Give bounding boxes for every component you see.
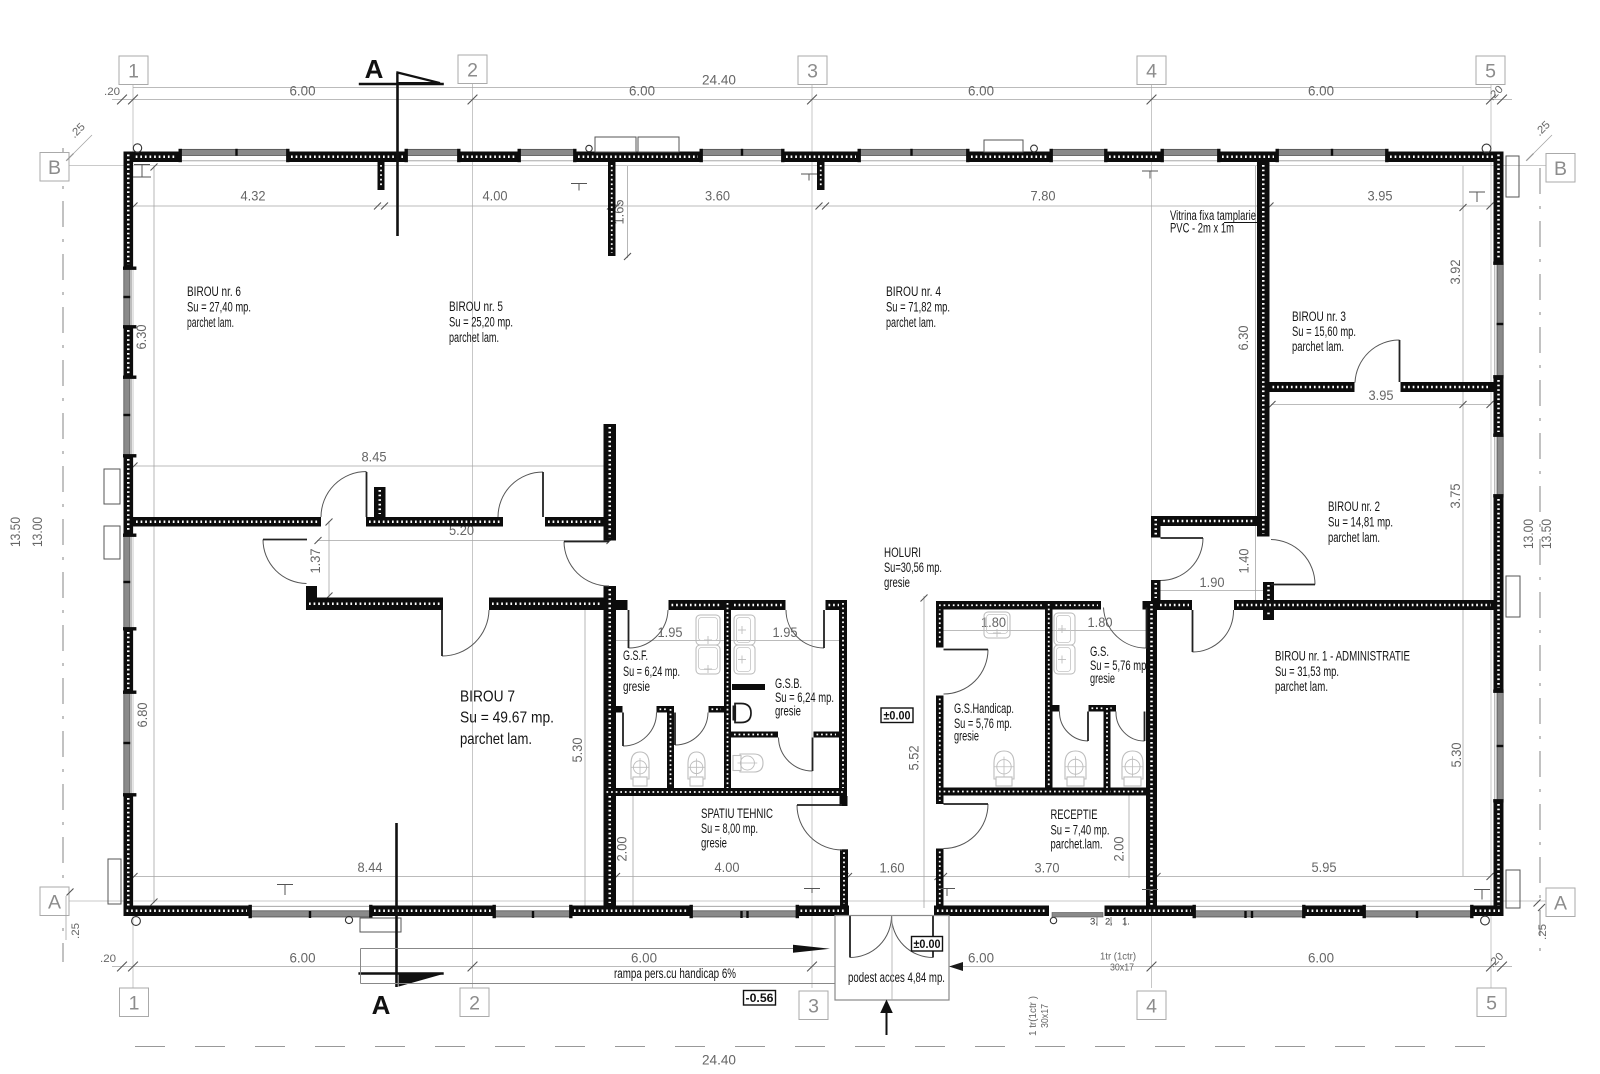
svg-text:3.92: 3.92 <box>1448 260 1463 285</box>
svg-text:7.80: 7.80 <box>1031 189 1056 204</box>
svg-text:3.70: 3.70 <box>1035 861 1060 876</box>
svg-text:4: 4 <box>1146 996 1157 1018</box>
svg-text:Su = 71,82 mp.: Su = 71,82 mp. <box>886 300 950 315</box>
svg-text:6.00: 6.00 <box>1308 84 1334 99</box>
svg-text:3: 3 <box>807 61 818 83</box>
svg-text:6.30: 6.30 <box>1236 326 1251 351</box>
svg-text:gresie: gresie <box>775 704 801 719</box>
svg-text:podest acces 4,84 mp.: podest acces 4,84 mp. <box>848 970 945 985</box>
svg-text:G.S.Handicap.: G.S.Handicap. <box>954 701 1014 716</box>
svg-text:Su = 14,81 mp.: Su = 14,81 mp. <box>1328 515 1393 530</box>
svg-text:RECEPTIE: RECEPTIE <box>1051 807 1098 822</box>
svg-text:6.00: 6.00 <box>968 84 994 99</box>
svg-text:BIROU 7: BIROU 7 <box>460 689 515 706</box>
svg-text:Su = 27,40 mp.: Su = 27,40 mp. <box>187 300 251 315</box>
svg-text:B: B <box>1554 158 1567 180</box>
svg-text:Su = 49.67 mp.: Su = 49.67 mp. <box>460 710 554 727</box>
svg-text:4.32: 4.32 <box>241 189 266 204</box>
svg-text:HOLURI: HOLURI <box>884 545 921 560</box>
svg-text:±0.00: ±0.00 <box>884 711 911 723</box>
svg-text:parchet lam.: parchet lam. <box>460 731 532 748</box>
svg-text:5.52: 5.52 <box>907 746 922 771</box>
svg-text:Su=30,56 mp.: Su=30,56 mp. <box>884 560 942 575</box>
svg-text:1.80: 1.80 <box>981 615 1006 630</box>
svg-text:1 tr(1ctr ): 1 tr(1ctr ) <box>1028 996 1039 1036</box>
svg-text:Su = 6,24 mp.: Su = 6,24 mp. <box>623 664 680 679</box>
svg-text:3.95: 3.95 <box>1368 189 1393 204</box>
svg-text:30x17: 30x17 <box>1110 963 1134 974</box>
svg-text:1: 1 <box>129 993 140 1015</box>
svg-text:parchet lam.: parchet lam. <box>1275 679 1328 694</box>
svg-text:BIROU nr. 5: BIROU nr. 5 <box>449 299 503 314</box>
svg-text:BIROU nr. 3: BIROU nr. 3 <box>1292 309 1346 324</box>
svg-text:5.95: 5.95 <box>1312 860 1337 875</box>
svg-text:1.37: 1.37 <box>308 549 323 574</box>
svg-text:G.S.B.: G.S.B. <box>775 676 802 691</box>
svg-text:3.: 3. <box>1090 917 1098 928</box>
svg-text:A: A <box>1554 893 1567 915</box>
svg-text:A: A <box>48 892 61 914</box>
svg-text:1.80: 1.80 <box>1088 615 1113 630</box>
svg-text:4.00: 4.00 <box>715 860 740 875</box>
svg-text:-0.56: -0.56 <box>746 993 774 1005</box>
svg-text:13.50: 13.50 <box>1539 519 1554 549</box>
svg-text:6.00: 6.00 <box>1308 951 1334 966</box>
svg-text:8.44: 8.44 <box>358 860 383 875</box>
svg-text:1.: 1. <box>1122 917 1130 928</box>
svg-text:2: 2 <box>467 60 478 82</box>
svg-text:gresie: gresie <box>954 729 979 744</box>
svg-text:.20: .20 <box>100 953 116 965</box>
svg-text:PVC - 2m x 1m: PVC - 2m x 1m <box>1170 221 1234 236</box>
svg-text:24.40: 24.40 <box>702 73 736 88</box>
svg-text:13.00: 13.00 <box>30 517 45 547</box>
svg-text:2.: 2. <box>1105 917 1113 928</box>
svg-text:gresie: gresie <box>1090 671 1115 686</box>
svg-text:5.30: 5.30 <box>570 738 585 763</box>
svg-text:3.60: 3.60 <box>705 189 730 204</box>
svg-text:±0.00: ±0.00 <box>914 939 941 951</box>
svg-text:2.00: 2.00 <box>615 837 630 862</box>
svg-text:1.90: 1.90 <box>1200 575 1225 590</box>
svg-text:6.80: 6.80 <box>135 703 150 728</box>
svg-text:Su = 25,20 mp.: Su = 25,20 mp. <box>449 315 513 330</box>
svg-text:parchet.lam.: parchet.lam. <box>1051 837 1103 852</box>
svg-text:SPATIU TEHNIC: SPATIU TEHNIC <box>701 806 773 821</box>
svg-text:6.00: 6.00 <box>290 951 316 966</box>
svg-text:Su = 31,53 mp.: Su = 31,53 mp. <box>1275 664 1339 679</box>
svg-text:1.60: 1.60 <box>880 861 905 876</box>
svg-text:2.00: 2.00 <box>1112 837 1127 862</box>
svg-text:1tr (1ctr): 1tr (1ctr) <box>1100 952 1136 963</box>
svg-text:gresie: gresie <box>701 836 727 851</box>
svg-text:.20: .20 <box>104 86 120 98</box>
svg-text:Su = 15,60 mp.: Su = 15,60 mp. <box>1292 324 1356 339</box>
svg-text:parchet lam.: parchet lam. <box>1328 530 1380 545</box>
svg-text:1: 1 <box>128 61 139 83</box>
svg-text:6.00: 6.00 <box>631 951 657 966</box>
svg-text:1.95: 1.95 <box>658 625 683 640</box>
svg-text:13.50: 13.50 <box>8 517 23 547</box>
svg-text:BIROU nr. 4: BIROU nr. 4 <box>886 284 941 299</box>
svg-text:.25: .25 <box>70 923 82 939</box>
svg-text:1.40: 1.40 <box>1237 549 1252 574</box>
svg-text:13.00: 13.00 <box>1521 519 1536 549</box>
svg-text:G.S.: G.S. <box>1090 644 1109 659</box>
svg-text:6.00: 6.00 <box>629 84 655 99</box>
svg-text:gresie: gresie <box>623 679 650 694</box>
svg-text:Su = 7,40 mp.: Su = 7,40 mp. <box>1051 823 1110 838</box>
svg-text:30x17: 30x17 <box>1040 1004 1051 1028</box>
svg-text:6.00: 6.00 <box>968 951 994 966</box>
svg-text:4: 4 <box>1146 61 1157 83</box>
svg-text:rampa pers.cu handicap 6%: rampa pers.cu handicap 6% <box>614 966 736 981</box>
svg-text:3: 3 <box>808 996 819 1018</box>
svg-text:4.00: 4.00 <box>483 189 508 204</box>
svg-text:B: B <box>48 157 61 179</box>
svg-text:gresie: gresie <box>884 575 910 590</box>
svg-text:3.95: 3.95 <box>1369 388 1394 403</box>
svg-text:A: A <box>372 990 391 1020</box>
svg-text:parchet lam.: parchet lam. <box>886 315 936 330</box>
svg-text:5: 5 <box>1486 993 1497 1015</box>
svg-text:A: A <box>365 54 384 84</box>
svg-text:.25: .25 <box>1537 924 1549 940</box>
svg-text:3.75: 3.75 <box>1448 484 1463 509</box>
svg-text:parchet lam.: parchet lam. <box>449 330 499 345</box>
svg-text:2: 2 <box>469 993 480 1015</box>
svg-text:BIROU nr. 1 - ADMINISTRATIE: BIROU nr. 1 - ADMINISTRATIE <box>1275 649 1410 664</box>
svg-text:6.00: 6.00 <box>290 84 316 99</box>
svg-text:parchet lam.: parchet lam. <box>1292 339 1344 354</box>
svg-text:Su = 8,00 mp.: Su = 8,00 mp. <box>701 821 758 836</box>
svg-text:BIROU nr. 2: BIROU nr. 2 <box>1328 499 1380 514</box>
svg-text:8.45: 8.45 <box>362 450 387 465</box>
svg-text:G.S.F.: G.S.F. <box>623 648 648 663</box>
svg-text:5.30: 5.30 <box>1449 743 1464 768</box>
svg-text:24.40: 24.40 <box>702 1053 736 1068</box>
svg-text:parchet lam.: parchet lam. <box>187 315 234 330</box>
svg-text:5: 5 <box>1485 61 1496 83</box>
svg-text:BIROU nr. 6: BIROU nr. 6 <box>187 284 241 299</box>
